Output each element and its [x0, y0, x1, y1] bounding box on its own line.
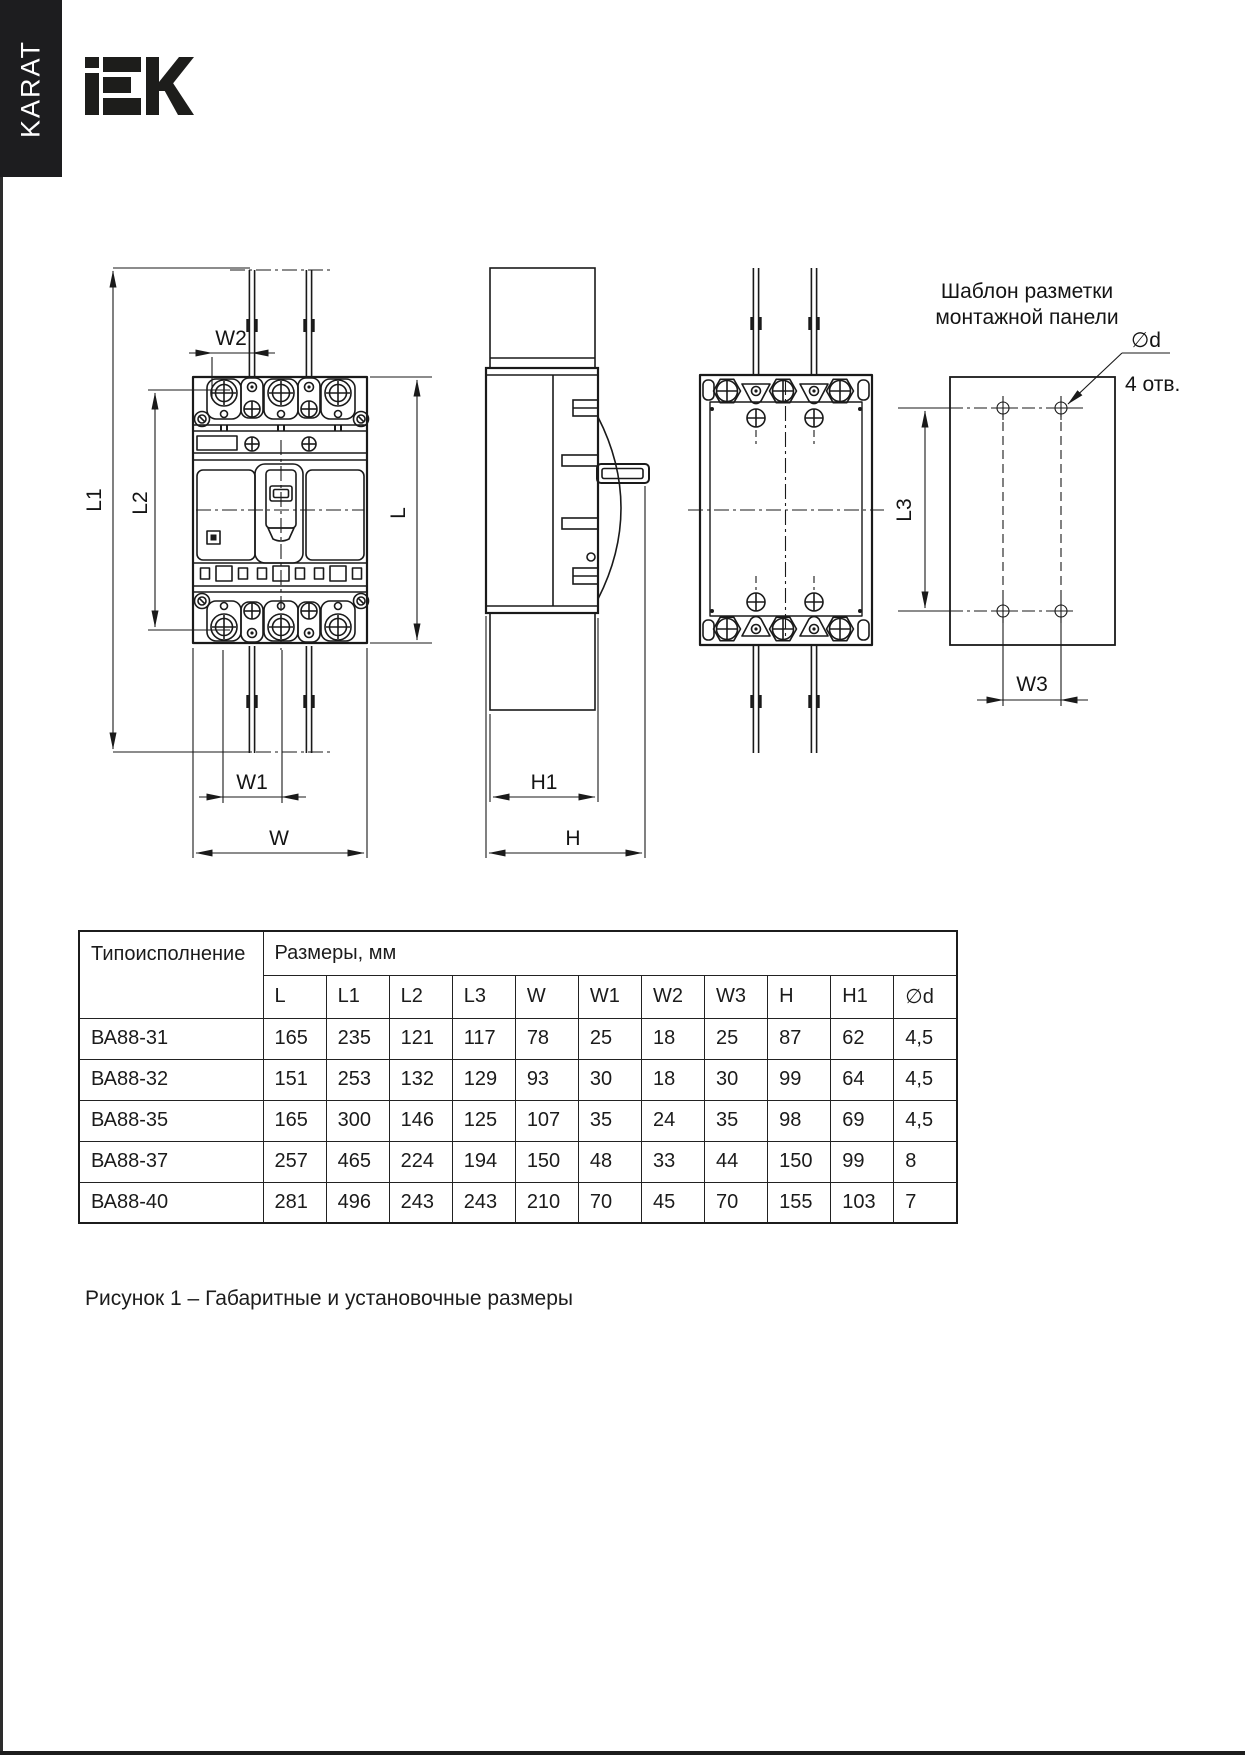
dim-cell: 151: [263, 1059, 326, 1100]
dim-cell: 78: [515, 1018, 578, 1059]
dim-label-l1: L1: [83, 488, 106, 511]
dim-cell: 107: [515, 1100, 578, 1141]
col-header-w1: W1: [578, 975, 641, 1018]
holes-count-label: 4 отв.: [1125, 373, 1180, 396]
dim-cell: 4,5: [894, 1059, 957, 1100]
dim-cell: 69: [831, 1100, 894, 1141]
dim-cell: 30: [705, 1059, 768, 1100]
dim-cell: 64: [831, 1059, 894, 1100]
dim-cell: 18: [641, 1059, 704, 1100]
dim-cell: 243: [452, 1182, 515, 1223]
dim-label-l2: L2: [129, 491, 152, 514]
dim-cell: 4,5: [894, 1018, 957, 1059]
table-row: ВА88-37257465224194150483344150998: [79, 1141, 957, 1182]
dim-cell: 35: [578, 1100, 641, 1141]
type-cell: ВА88-37: [79, 1141, 263, 1182]
dim-cell: 103: [831, 1182, 894, 1223]
col-header-l3: L3: [452, 975, 515, 1018]
dim-label-w1: W1: [236, 771, 268, 794]
dim-cell: 132: [389, 1059, 452, 1100]
table-row: ВА88-402814962432432107045701551037: [79, 1182, 957, 1223]
dimensions-table: Типоисполнение Размеры, мм L L1 L2 L3 W …: [78, 930, 958, 1224]
col-header-h1: H1: [831, 975, 894, 1018]
dim-cell: 146: [389, 1100, 452, 1141]
mounting-template-drawing: L3 W3 ∅d 4 отв. Шаблон разметки монтажно…: [893, 280, 1180, 706]
type-column-header: Типоисполнение: [79, 931, 263, 1018]
dim-cell: 257: [263, 1141, 326, 1182]
type-cell: ВА88-32: [79, 1059, 263, 1100]
dim-label-diameter: ∅d: [1131, 329, 1161, 352]
dim-cell: 150: [768, 1141, 831, 1182]
template-title-line1: Шаблон разметки: [941, 280, 1113, 303]
dim-cell: 70: [705, 1182, 768, 1223]
dim-cell: 62: [831, 1018, 894, 1059]
col-header-w2: W2: [641, 975, 704, 1018]
dim-label-w: W: [269, 827, 289, 850]
dim-cell: 99: [831, 1141, 894, 1182]
dim-label-l: L: [387, 507, 410, 519]
dim-cell: 300: [326, 1100, 389, 1141]
dim-cell: 125: [452, 1100, 515, 1141]
dim-cell: 4,5: [894, 1100, 957, 1141]
dim-cell: 281: [263, 1182, 326, 1223]
dim-cell: 243: [389, 1182, 452, 1223]
dim-cell: 496: [326, 1182, 389, 1223]
dim-cell: 18: [641, 1018, 704, 1059]
dim-label-w2: W2: [215, 327, 247, 350]
dim-cell: 30: [578, 1059, 641, 1100]
dim-cell: 155: [768, 1182, 831, 1223]
table-row: ВА88-3516530014612510735243598694,5: [79, 1100, 957, 1141]
type-cell: ВА88-40: [79, 1182, 263, 1223]
side-view-dimensions: H1 H: [486, 486, 645, 858]
dim-cell: 121: [389, 1018, 452, 1059]
dim-cell: 99: [768, 1059, 831, 1100]
table-body: ВА88-311652351211177825182587624,5ВА88-3…: [79, 1018, 957, 1223]
dim-cell: 70: [578, 1182, 641, 1223]
table-header-row-group: Типоисполнение Размеры, мм: [79, 931, 957, 975]
dim-cell: 235: [326, 1018, 389, 1059]
dim-cell: 87: [768, 1018, 831, 1059]
dim-cell: 44: [705, 1141, 768, 1182]
datasheet-page: KARAT: [0, 0, 1245, 1755]
dim-cell: 25: [578, 1018, 641, 1059]
side-view-drawing: [486, 268, 649, 710]
dim-cell: 33: [641, 1141, 704, 1182]
type-cell: ВА88-31: [79, 1018, 263, 1059]
dim-cell: 48: [578, 1141, 641, 1182]
table-row: ВА88-321512531321299330183099644,5: [79, 1059, 957, 1100]
col-header-l1: L1: [326, 975, 389, 1018]
table-row: ВА88-311652351211177825182587624,5: [79, 1018, 957, 1059]
dim-cell: 98: [768, 1100, 831, 1141]
dim-cell: 165: [263, 1018, 326, 1059]
dim-cell: 24: [641, 1100, 704, 1141]
dim-label-w3: W3: [1016, 673, 1048, 696]
col-header-l2: L2: [389, 975, 452, 1018]
dim-cell: 210: [515, 1182, 578, 1223]
dim-cell: 165: [263, 1100, 326, 1141]
dim-label-h1: H1: [531, 771, 558, 794]
dim-cell: 35: [705, 1100, 768, 1141]
dim-label-h: H: [565, 827, 580, 850]
template-title-line2: монтажной панели: [935, 306, 1118, 329]
col-header-w3: W3: [705, 975, 768, 1018]
back-view-drawing: [688, 268, 884, 753]
dim-cell: 224: [389, 1141, 452, 1182]
dim-cell: 8: [894, 1141, 957, 1182]
figure-caption: Рисунок 1 – Габаритные и установочные ра…: [85, 1287, 573, 1311]
dim-cell: 45: [641, 1182, 704, 1223]
dim-cell: 194: [452, 1141, 515, 1182]
dim-cell: 93: [515, 1059, 578, 1100]
dim-cell: 7: [894, 1182, 957, 1223]
col-header-h: H: [768, 975, 831, 1018]
dim-label-l3: L3: [893, 498, 916, 521]
page-bottom-border: [0, 1751, 1245, 1755]
dimensions-group-header: Размеры, мм: [263, 931, 957, 975]
dim-cell: 150: [515, 1141, 578, 1182]
dim-cell: 25: [705, 1018, 768, 1059]
type-cell: ВА88-35: [79, 1100, 263, 1141]
col-header-d: ∅d: [894, 975, 957, 1018]
col-header-l: L: [263, 975, 326, 1018]
col-header-w: W: [515, 975, 578, 1018]
dim-cell: 117: [452, 1018, 515, 1059]
technical-drawing: L1 L2 L W2 W1 W: [0, 0, 1245, 900]
dim-cell: 465: [326, 1141, 389, 1182]
dim-cell: 129: [452, 1059, 515, 1100]
dim-cell: 253: [326, 1059, 389, 1100]
